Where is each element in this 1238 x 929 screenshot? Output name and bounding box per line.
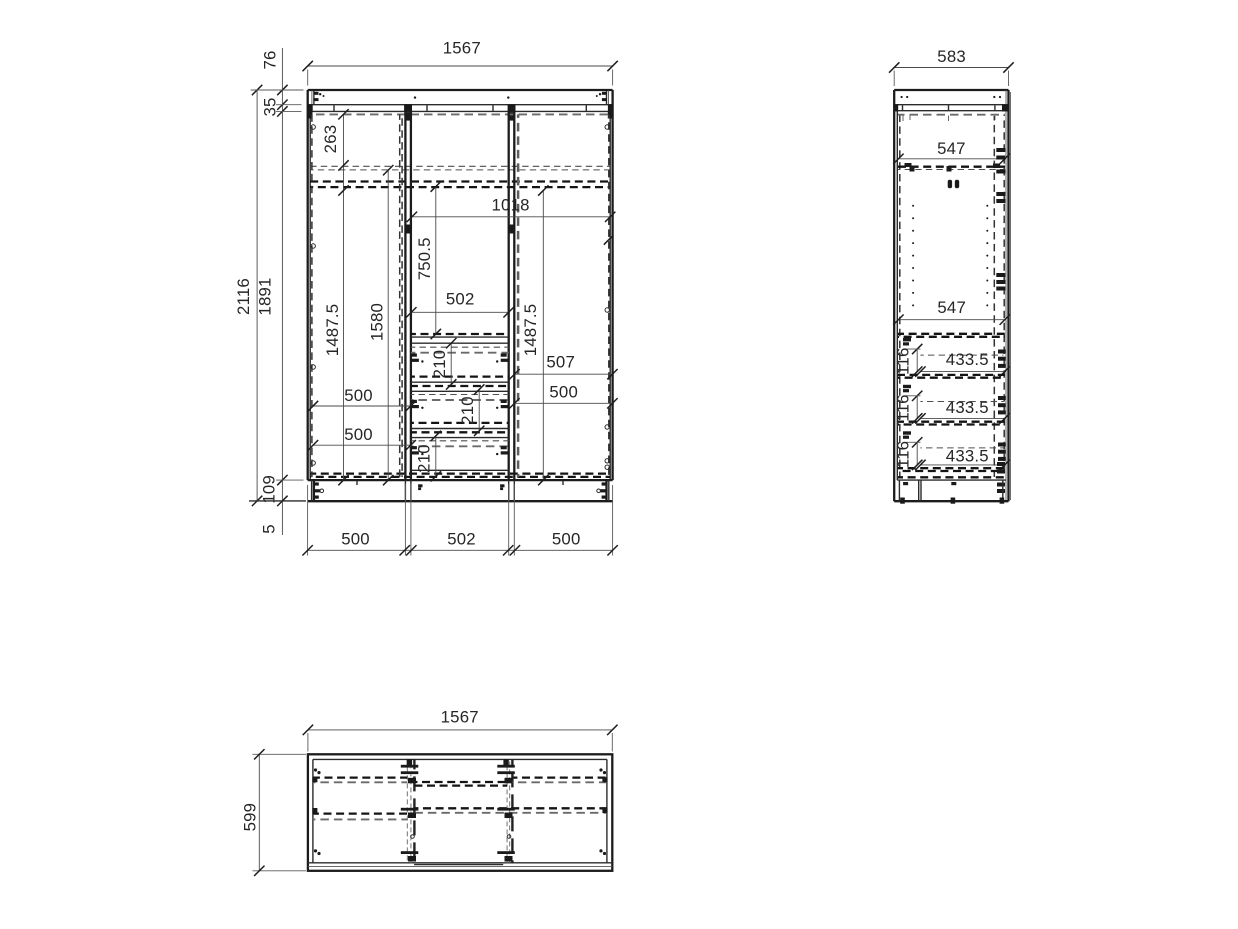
svg-text:599: 599 <box>240 803 259 832</box>
svg-text:500: 500 <box>552 529 581 548</box>
svg-text:5: 5 <box>259 524 278 534</box>
svg-text:1891: 1891 <box>255 277 274 315</box>
svg-text:2116: 2116 <box>234 278 253 315</box>
svg-text:433.5: 433.5 <box>946 350 989 369</box>
svg-text:76: 76 <box>261 50 280 69</box>
svg-text:500: 500 <box>341 529 370 548</box>
svg-text:750.5: 750.5 <box>415 237 434 280</box>
svg-text:210: 210 <box>415 444 434 473</box>
svg-text:500: 500 <box>344 425 373 444</box>
svg-text:1487.5: 1487.5 <box>323 304 342 357</box>
svg-text:507: 507 <box>546 352 575 371</box>
svg-text:433.5: 433.5 <box>946 398 989 417</box>
svg-text:109: 109 <box>259 475 278 504</box>
svg-text:500: 500 <box>344 386 373 405</box>
svg-text:210: 210 <box>430 350 449 379</box>
svg-text:210: 210 <box>458 396 477 425</box>
svg-text:502: 502 <box>446 290 475 309</box>
svg-text:583: 583 <box>937 47 966 66</box>
svg-text:35: 35 <box>261 97 280 116</box>
svg-text:1567: 1567 <box>443 39 481 58</box>
svg-text:433.5: 433.5 <box>946 446 989 465</box>
svg-text:263: 263 <box>321 125 340 154</box>
svg-text:116: 116 <box>893 348 912 375</box>
svg-text:1487.5: 1487.5 <box>521 304 540 357</box>
svg-text:1018: 1018 <box>492 195 530 214</box>
svg-text:500: 500 <box>549 382 578 401</box>
svg-text:1580: 1580 <box>368 303 387 341</box>
svg-text:547: 547 <box>937 139 966 158</box>
svg-text:116: 116 <box>893 441 912 468</box>
svg-text:502: 502 <box>447 529 476 548</box>
svg-text:547: 547 <box>937 298 966 317</box>
svg-text:1567: 1567 <box>441 708 479 727</box>
svg-text:116: 116 <box>893 394 912 421</box>
